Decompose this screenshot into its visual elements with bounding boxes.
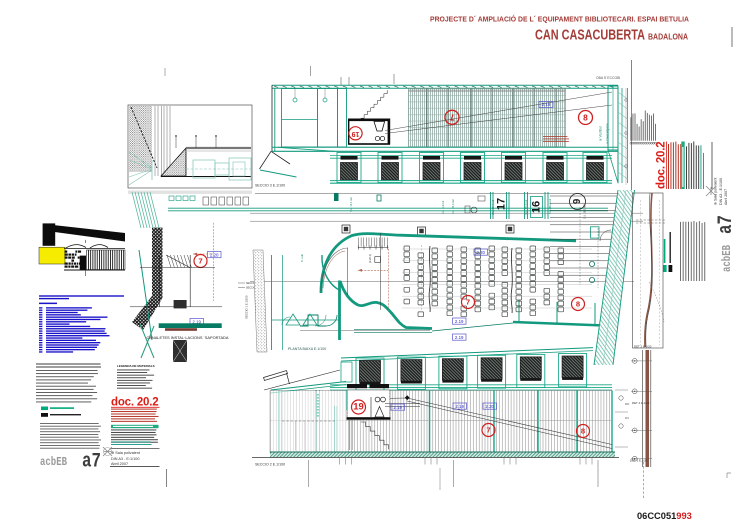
svg-text:SECCIO 3 E.1/100: SECCIO 3 E.1/100 — [255, 184, 285, 188]
svg-text:S.L. 74,1 m2: S.L. 74,1 m2 — [349, 197, 353, 212]
svg-text:LEGENDA DE MATERIALS: LEGENDA DE MATERIALS — [117, 364, 155, 368]
svg-text:8: 8 — [581, 427, 585, 436]
svg-text:PLANTA BAIXA E.1/100: PLANTA BAIXA E.1/100 — [288, 347, 326, 351]
svg-text:7: 7 — [198, 257, 202, 266]
svg-text:2.20: 2.20 — [210, 252, 219, 257]
svg-text:⊕ Vestibul: ⊕ Vestibul — [599, 126, 603, 141]
svg-text:CANALETES INSTAL·LACIONS ´SAPO: CANALETES INSTAL·LACIONS ´SAPORTADA — [147, 335, 229, 340]
svg-text:⊕ Sala polivalent: ⊕ Sala polivalent — [111, 451, 141, 455]
svg-text:19: 19 — [352, 130, 360, 137]
svg-text:7: 7 — [450, 112, 455, 122]
svg-text:BADALONA: BADALONA — [648, 33, 688, 42]
svg-text:2.19: 2.19 — [455, 319, 464, 324]
svg-text:S.L. 15,4 m2: S.L. 15,4 m2 — [451, 199, 455, 214]
svg-text:2.19: 2.19 — [455, 404, 464, 409]
svg-text:Abril 2007: Abril 2007 — [724, 189, 728, 205]
svg-text:CAN CASACUBERTA: CAN CASACUBERTA — [535, 28, 645, 44]
svg-text:D3: D3 — [625, 416, 629, 420]
svg-text:Abril 2007: Abril 2007 — [111, 462, 128, 466]
svg-text:PROJECTE D´ AMPLIACIÓ DE L´ EQ: PROJECTE D´ AMPLIACIÓ DE L´ EQUIPAMENT B… — [430, 15, 689, 24]
svg-text:DET 2 E.1/20: DET 2 E.1/20 — [634, 345, 652, 349]
svg-text:2.20: 2.20 — [485, 404, 494, 409]
svg-text:8: 8 — [583, 113, 588, 123]
svg-text:S.U. 55,4 m2: S.U. 55,4 m2 — [491, 199, 495, 215]
svg-text:a7: a7 — [82, 451, 101, 474]
svg-text:8: 8 — [576, 300, 580, 309]
svg-text:DIN A3 - E:1/100: DIN A3 - E:1/100 — [719, 178, 723, 205]
svg-text:S.U. 16,1 m2: S.U. 16,1 m2 — [584, 204, 587, 219]
svg-text:doc. 20.2: doc. 20.2 — [111, 397, 158, 409]
svg-text:7: 7 — [466, 298, 470, 307]
svg-text:7: 7 — [486, 426, 490, 435]
svg-text:SECCIO 1 E.1/100: SECCIO 1 E.1/100 — [245, 295, 249, 319]
svg-text:B. Letti: B. Letti — [301, 254, 304, 262]
svg-text:a7: a7 — [715, 215, 738, 234]
svg-text:06CC051993: 06CC051993 — [637, 511, 692, 521]
svg-text:DIN A3 - E:1/100: DIN A3 - E:1/100 — [111, 457, 140, 461]
svg-text:19: 19 — [353, 402, 364, 413]
svg-text:doc. 20.2: doc. 20.2 — [656, 142, 668, 189]
svg-text:OBA S´ECCOBI: OBA S´ECCOBI — [596, 76, 620, 80]
svg-text:⊕ Sala polivalent: ⊕ Sala polivalent — [714, 178, 718, 205]
svg-text:S.U. 55,4 m2: S.U. 55,4 m2 — [524, 199, 528, 215]
svg-text:2.20: 2.20 — [476, 250, 485, 255]
svg-text:(2.20.1): (2.20.1) — [368, 254, 372, 263]
svg-text:DET 3 E.1/20: DET 3 E.1/20 — [630, 459, 648, 463]
svg-text:DET 4 E.1/20: DET 4 E.1/20 — [632, 401, 650, 405]
svg-text:2.19: 2.19 — [542, 102, 551, 107]
svg-text:S.L. 3,4 m2: S.L. 3,4 m2 — [441, 200, 445, 214]
svg-text:acbEB: acbEB — [721, 245, 734, 272]
svg-text:2.19: 2.19 — [393, 405, 402, 410]
svg-text:SECCIO 2 E.1/100: SECCIO 2 E.1/100 — [255, 463, 285, 467]
svg-text:S.U./46,4 m2: S.U./46,4 m2 — [548, 198, 552, 214]
svg-text:16: 16 — [531, 201, 543, 213]
svg-text:acbEB: acbEB — [40, 456, 67, 469]
svg-text:17: 17 — [496, 198, 508, 210]
svg-text:2.19: 2.19 — [455, 335, 464, 340]
